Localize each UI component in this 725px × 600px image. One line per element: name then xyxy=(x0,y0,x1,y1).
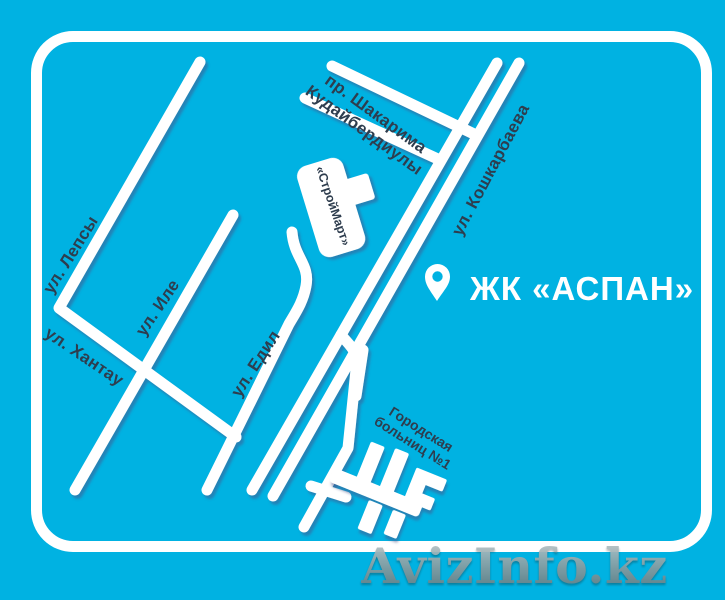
road-ile xyxy=(75,215,233,490)
aspan-complex-title: ЖК «АСПАН» xyxy=(470,270,694,308)
watermark-text: AvizInfo.kz xyxy=(361,537,668,595)
road-hospital-branch-2 xyxy=(356,350,363,396)
location-pin-icon xyxy=(425,264,450,301)
map-canvas: ул. Лепсы ул. Иле ул. Хантау ул. Едил пр… xyxy=(0,0,725,600)
